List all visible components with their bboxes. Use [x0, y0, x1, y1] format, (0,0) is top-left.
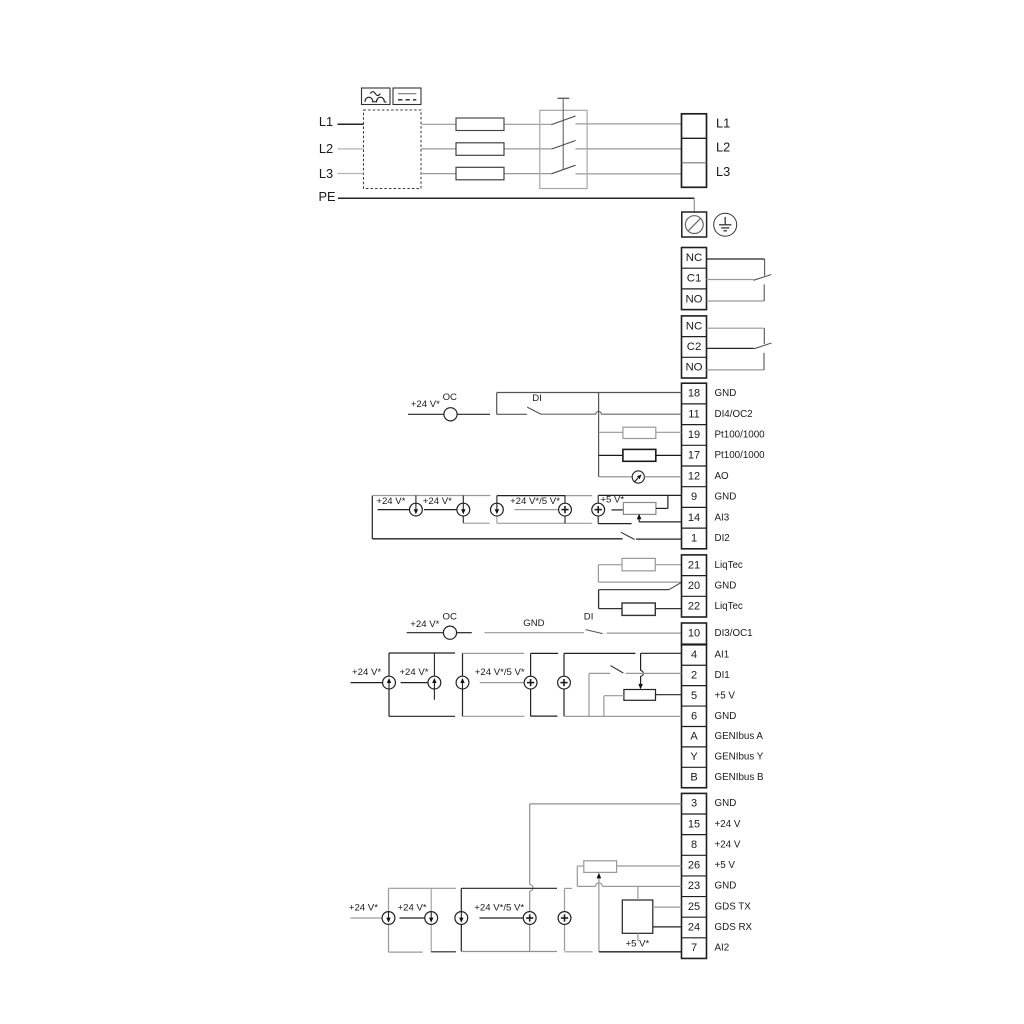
- svg-text:Pt100/1000: Pt100/1000: [715, 429, 766, 440]
- svg-text:+24 V*/5 V*: +24 V*/5 V*: [474, 903, 524, 914]
- svg-text:22: 22: [688, 601, 700, 613]
- svg-text:+24 V*/5 V*: +24 V*/5 V*: [475, 667, 525, 678]
- svg-text:GND: GND: [715, 388, 737, 399]
- svg-text:L1: L1: [716, 115, 730, 130]
- svg-text:AI1: AI1: [715, 650, 730, 661]
- svg-text:C2: C2: [687, 341, 702, 353]
- svg-text:+24 V*: +24 V*: [352, 667, 381, 678]
- svg-text:+24 V*: +24 V*: [398, 903, 427, 914]
- svg-text:L3: L3: [319, 166, 333, 181]
- svg-text:4: 4: [691, 649, 697, 661]
- svg-text:GND: GND: [715, 580, 737, 591]
- svg-text:+5 V*: +5 V*: [626, 938, 650, 949]
- svg-text:2: 2: [691, 669, 697, 681]
- svg-text:LiqTec: LiqTec: [715, 560, 743, 571]
- svg-text:AI3: AI3: [715, 512, 730, 523]
- svg-text:7: 7: [691, 942, 697, 954]
- svg-text:+24 V*: +24 V*: [411, 399, 440, 410]
- svg-text:A: A: [690, 731, 698, 743]
- svg-text:19: 19: [688, 429, 700, 441]
- svg-text:+5 V*: +5 V*: [600, 495, 624, 506]
- svg-text:GENIbus B: GENIbus B: [715, 772, 764, 783]
- svg-text:L2: L2: [319, 141, 333, 156]
- svg-text:L1: L1: [319, 114, 333, 129]
- svg-text:18: 18: [688, 388, 700, 400]
- svg-text:OC: OC: [443, 611, 457, 622]
- svg-text:DI2: DI2: [715, 533, 730, 544]
- svg-text:GND: GND: [523, 618, 544, 629]
- svg-text:GDS RX: GDS RX: [715, 922, 753, 933]
- svg-text:+24 V*: +24 V*: [410, 619, 439, 630]
- svg-text:GENIbus A: GENIbus A: [715, 731, 764, 742]
- svg-text:LiqTec: LiqTec: [715, 601, 743, 612]
- svg-text:NC: NC: [686, 252, 702, 264]
- svg-text:B: B: [690, 772, 697, 784]
- svg-text:GENIbus Y: GENIbus Y: [715, 752, 764, 763]
- svg-text:26: 26: [688, 860, 700, 872]
- svg-text:23: 23: [688, 880, 700, 892]
- svg-text:+24 V*/5 V*: +24 V*/5 V*: [510, 496, 560, 507]
- svg-text:25: 25: [688, 901, 700, 913]
- svg-text:DI: DI: [584, 611, 594, 622]
- svg-text:5: 5: [691, 690, 697, 702]
- svg-text:DI1: DI1: [715, 670, 730, 681]
- svg-text:DI3/OC1: DI3/OC1: [715, 628, 753, 639]
- svg-text:GND: GND: [715, 711, 737, 722]
- svg-text:GDS TX: GDS TX: [715, 901, 752, 912]
- svg-text:+24 V*: +24 V*: [349, 903, 378, 914]
- svg-text:NO: NO: [685, 362, 702, 374]
- svg-text:20: 20: [688, 580, 700, 592]
- svg-text:DI: DI: [532, 393, 542, 404]
- svg-text:GND: GND: [715, 881, 737, 892]
- svg-text:L3: L3: [716, 164, 730, 179]
- svg-text:15: 15: [688, 818, 700, 830]
- svg-text:Y: Y: [690, 751, 698, 763]
- svg-text:24: 24: [688, 921, 700, 933]
- svg-text:21: 21: [688, 559, 700, 571]
- svg-text:11: 11: [688, 408, 699, 420]
- svg-text:AO: AO: [715, 471, 730, 482]
- svg-text:NO: NO: [685, 293, 702, 305]
- svg-text:PE: PE: [318, 189, 335, 204]
- svg-text:+24 V*: +24 V*: [399, 667, 428, 678]
- svg-text:10: 10: [688, 628, 700, 640]
- svg-text:8: 8: [691, 839, 697, 851]
- svg-text:Pt100/1000: Pt100/1000: [715, 450, 766, 461]
- svg-text:+5 V: +5 V: [715, 690, 736, 701]
- svg-text:+24 V*: +24 V*: [376, 496, 405, 507]
- svg-text:9: 9: [691, 491, 697, 503]
- svg-text:6: 6: [691, 710, 697, 722]
- svg-text:+24 V: +24 V: [715, 819, 741, 830]
- svg-text:C1: C1: [687, 273, 702, 285]
- svg-text:+5 V: +5 V: [715, 860, 736, 871]
- svg-text:+24 V*: +24 V*: [423, 496, 452, 507]
- svg-text:L2: L2: [716, 140, 730, 155]
- svg-text:3: 3: [691, 798, 697, 810]
- svg-text:17: 17: [688, 450, 700, 462]
- svg-text:OC: OC: [443, 392, 457, 403]
- svg-text:12: 12: [688, 470, 700, 482]
- svg-text:AI2: AI2: [715, 943, 730, 954]
- svg-text:GND: GND: [715, 798, 737, 809]
- svg-text:GND: GND: [715, 492, 737, 503]
- svg-text:+24 V: +24 V: [715, 839, 741, 850]
- svg-text:14: 14: [688, 512, 700, 524]
- svg-text:DI4/OC2: DI4/OC2: [715, 409, 753, 420]
- svg-text:NC: NC: [686, 320, 702, 332]
- svg-text:1: 1: [691, 532, 697, 544]
